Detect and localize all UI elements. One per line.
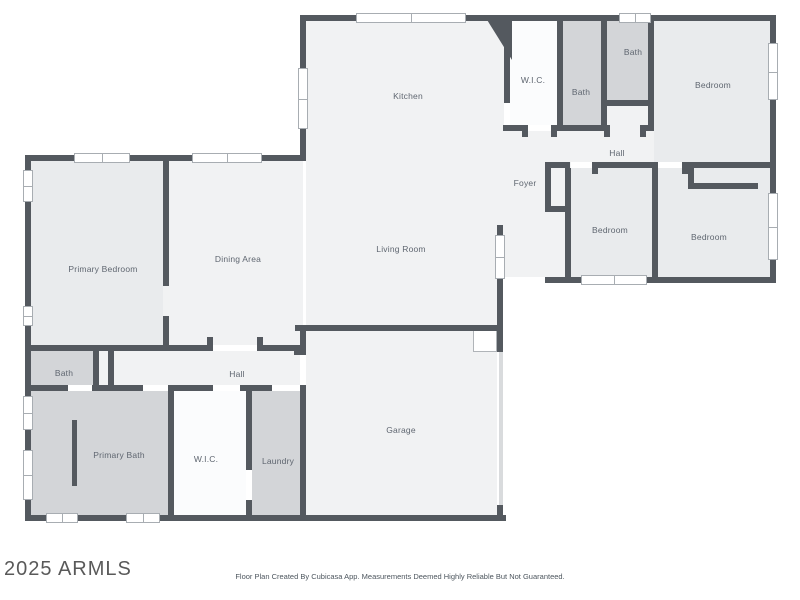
room-label-bedroom-right: Bedroom xyxy=(691,232,727,242)
room-label-foyer: Foyer xyxy=(514,178,537,188)
wall-segment xyxy=(93,351,99,385)
wall-segment xyxy=(598,162,658,168)
wall-segment xyxy=(648,21,654,131)
room-label-bath-upper-right: Bath xyxy=(624,47,642,57)
wall-segment xyxy=(557,125,610,131)
wall-segment xyxy=(295,325,503,331)
door-cap xyxy=(294,349,306,355)
wall-segment xyxy=(25,515,506,521)
room-wic-lower xyxy=(174,391,246,515)
footer-disclaimer: Floor Plan Created By Cubicasa App. Meas… xyxy=(235,572,564,581)
room-wic-upper xyxy=(510,21,557,125)
window xyxy=(126,513,160,523)
door-cap xyxy=(522,125,528,137)
door-cap xyxy=(207,337,213,345)
door-cap xyxy=(682,162,688,174)
room-label-hall-lower: Hall xyxy=(229,369,244,379)
bath-fixture-line xyxy=(72,420,77,486)
wall-segment xyxy=(688,162,770,168)
garage-utility-notch xyxy=(473,331,497,352)
room-label-primary-bedroom: Primary Bedroom xyxy=(68,264,137,274)
window xyxy=(495,235,505,279)
wall-segment xyxy=(108,351,114,385)
wall-segment xyxy=(246,500,252,515)
wall-segment xyxy=(497,331,503,352)
wall-segment xyxy=(92,385,143,391)
room-dining xyxy=(163,161,303,345)
room-label-laundry: Laundry xyxy=(262,456,294,466)
window xyxy=(46,513,78,523)
window xyxy=(74,153,130,163)
wall-segment xyxy=(246,391,252,470)
wall-segment xyxy=(300,385,306,521)
room-label-wic-lower: W.I.C. xyxy=(194,454,218,464)
room-hall-lower xyxy=(99,351,300,385)
wall-segment xyxy=(25,385,68,391)
wall-segment xyxy=(545,277,776,283)
wall-segment xyxy=(504,45,510,103)
wall-segment xyxy=(565,168,571,283)
window xyxy=(581,275,647,285)
window xyxy=(768,193,778,260)
window xyxy=(298,68,308,129)
wall-segment xyxy=(601,21,607,131)
wall-segment xyxy=(168,385,174,521)
window xyxy=(192,153,262,163)
wall-segment xyxy=(240,385,272,391)
room-label-bath-lower: Bath xyxy=(55,368,73,378)
floor-plan-page: Kitchen W.I.C. Bath Bath Bedroom Hall Fo… xyxy=(0,0,800,600)
room-garage xyxy=(306,331,497,515)
window xyxy=(768,43,778,100)
door-cap xyxy=(604,125,610,137)
room-label-dining-area: Dining Area xyxy=(215,254,261,264)
door-cap xyxy=(640,125,646,137)
wall-segment xyxy=(163,316,169,345)
room-label-bath-upper-mid: Bath xyxy=(572,87,590,97)
room-kitchen xyxy=(306,21,504,131)
room-laundry xyxy=(252,391,300,515)
room-label-wic-upper: W.I.C. xyxy=(521,75,545,85)
window xyxy=(23,450,33,500)
floor-plan: Kitchen W.I.C. Bath Bath Bedroom Hall Fo… xyxy=(0,0,800,600)
room-label-primary-bath: Primary Bath xyxy=(93,450,145,460)
wall-segment xyxy=(688,183,758,189)
window xyxy=(23,396,33,430)
room-bedroom-upper-right xyxy=(654,21,770,162)
room-primary-bedroom xyxy=(31,161,163,345)
room-bedroom-middle xyxy=(571,168,652,277)
wall-segment xyxy=(174,385,213,391)
room-bath-upper-mid xyxy=(563,21,601,125)
door-cap xyxy=(257,337,263,345)
room-living xyxy=(306,131,503,325)
wall-segment xyxy=(497,277,503,331)
room-label-bedroom-middle: Bedroom xyxy=(592,225,628,235)
window xyxy=(23,306,33,326)
wall-segment xyxy=(601,100,654,106)
room-label-bedroom-upper-right: Bedroom xyxy=(695,80,731,90)
room-bath-upper-right xyxy=(607,21,648,100)
room-label-hall-upper: Hall xyxy=(609,148,624,158)
wall-segment xyxy=(557,21,563,131)
door-cap xyxy=(551,125,557,137)
window xyxy=(356,13,466,23)
room-label-garage: Garage xyxy=(386,425,416,435)
window xyxy=(23,170,33,202)
wall-segment xyxy=(25,345,213,351)
room-label-kitchen: Kitchen xyxy=(393,91,423,101)
wall-segment xyxy=(163,161,169,286)
door-cap xyxy=(592,162,598,174)
room-label-living-room: Living Room xyxy=(376,244,425,254)
garage-door-line xyxy=(499,352,503,505)
window xyxy=(619,13,651,23)
watermark: 2025 ARMLS xyxy=(4,558,132,581)
wall-segment xyxy=(652,168,658,277)
